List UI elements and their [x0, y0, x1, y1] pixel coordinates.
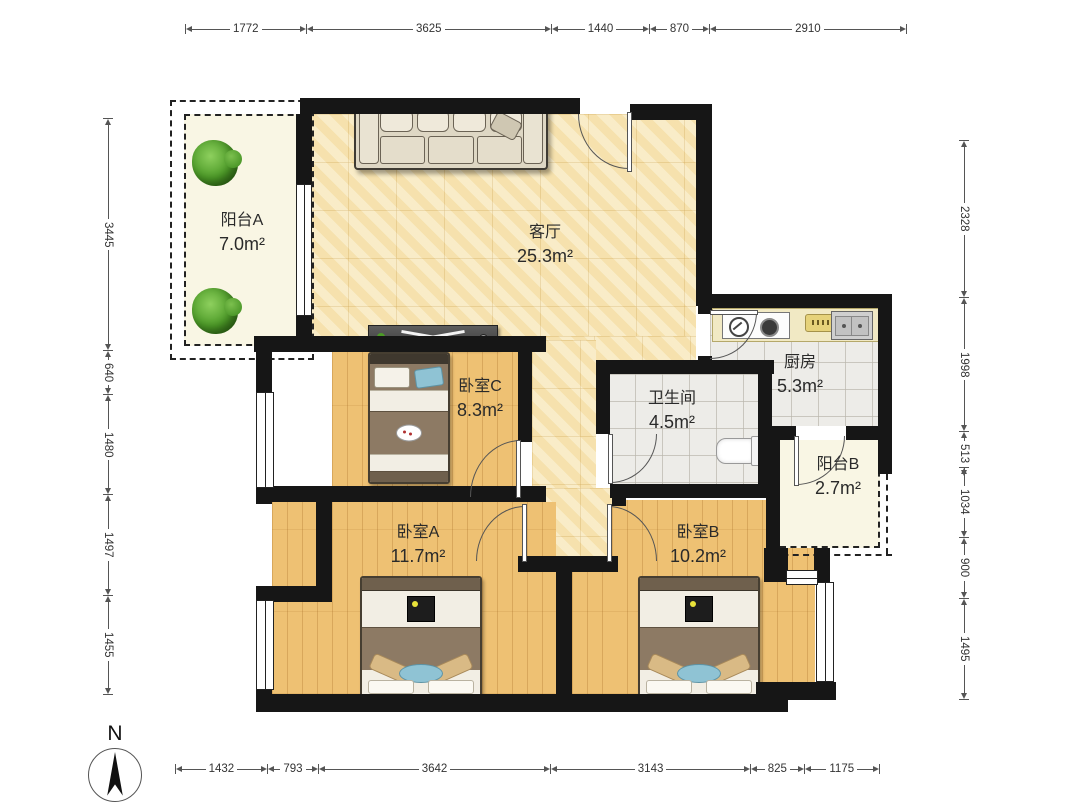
floorplan-canvas: 阳台A 7.0m² 客厅 25.3m² 厨房 5.3m² 卫生间 4.5m² 卧… [0, 0, 1080, 810]
sofa-armrest [359, 110, 379, 164]
wall [518, 556, 618, 572]
bedroom-b-door-leaf [607, 504, 612, 562]
window-bedroom-b-corner [786, 570, 818, 585]
wall [256, 486, 330, 502]
bed-headboard [370, 354, 448, 364]
window-bedroom-a [256, 600, 274, 690]
bed-pillows [362, 670, 480, 696]
double-sink-icon [831, 311, 873, 340]
wall [596, 360, 610, 434]
label-bathroom: 卫生间 4.5m² [612, 388, 732, 434]
bed-quilt-box [685, 596, 713, 622]
label-bedroom-c: 卧室C 8.3m² [420, 376, 540, 422]
compass-circle [88, 748, 142, 802]
bed-pillows [640, 670, 758, 696]
window-bedroom-b [816, 582, 834, 682]
kitchen-door-leaf [710, 310, 758, 315]
sofa-armrest [523, 110, 543, 164]
floor-bedroom-b [572, 560, 614, 694]
plant-icon [192, 288, 238, 334]
wall [846, 426, 892, 440]
label-bedroom-a: 卧室A 11.7m² [358, 522, 478, 568]
wall [556, 572, 572, 696]
bedroom-a-door-leaf [522, 504, 527, 562]
compass: N [86, 722, 144, 802]
bed-bedroom-b [638, 576, 760, 700]
wall [256, 336, 272, 394]
balcony-b-outline [772, 554, 892, 556]
label-balcony-b: 阳台B 2.7m² [778, 454, 898, 500]
label-balcony-a: 阳台A 7.0m² [184, 210, 300, 256]
wall [296, 114, 312, 186]
bathroom-door-leaf [608, 434, 613, 484]
bedroom-c-door-leaf [516, 440, 521, 498]
wall [710, 294, 892, 308]
wall [300, 98, 580, 114]
north-arrow-icon [102, 752, 128, 797]
north-label: N [86, 722, 144, 746]
wall [764, 548, 788, 582]
toilet-icon [716, 436, 764, 464]
wall [612, 486, 626, 506]
dimension-left: 3445 640 1480 1497 1455 [100, 118, 116, 695]
window-bedroom-c [256, 392, 274, 488]
entry-door-leaf [627, 112, 632, 172]
decor-plate [396, 425, 422, 442]
dimension-bottom: 1432 793 3642 3143 825 1175 [175, 762, 880, 776]
sofa-seat-cushions [380, 136, 522, 164]
bed-quilt-box [407, 596, 435, 622]
wall [610, 484, 774, 498]
wall [766, 426, 796, 440]
label-bedroom-b: 卧室B 10.2m² [638, 522, 758, 568]
wall [878, 294, 892, 440]
wall [330, 336, 546, 352]
plant-icon [192, 140, 238, 186]
wall [256, 694, 788, 712]
label-kitchen: 厨房 5.3m² [740, 352, 860, 398]
wall [316, 500, 332, 590]
bed-bedroom-a [360, 576, 482, 700]
wall [696, 104, 712, 306]
dimension-top: 1772 3625 1440 870 2910 [185, 22, 907, 36]
label-living-room: 客厅 25.3m² [485, 222, 605, 268]
dimension-right: 2328 1998 513 1034 900 1495 [956, 140, 972, 700]
floor-corridor [532, 340, 596, 490]
